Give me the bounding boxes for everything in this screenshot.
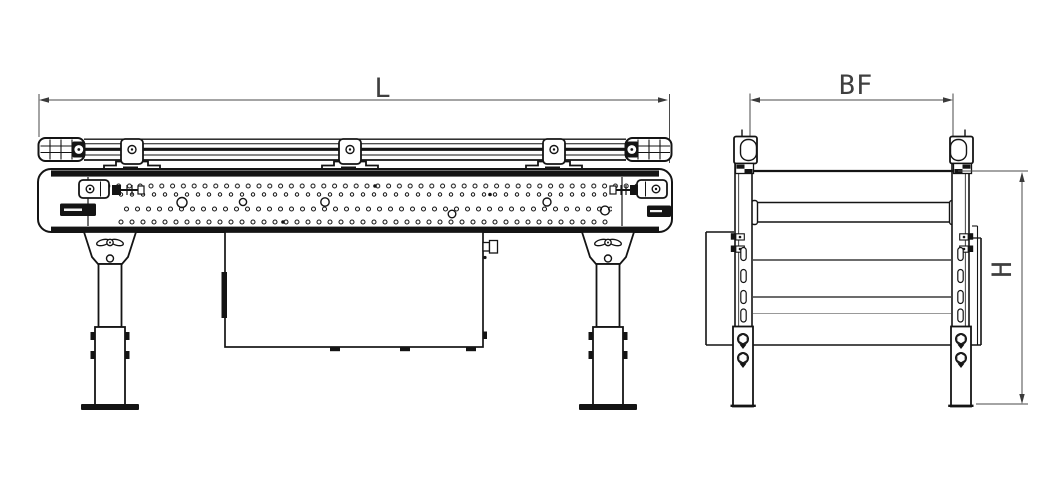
right-roller-clamp xyxy=(950,130,973,174)
belt-edge-perforation-row xyxy=(92,182,638,191)
return-roller xyxy=(752,201,956,225)
dimension-length-label: L xyxy=(374,73,391,104)
left-leg-channel xyxy=(731,161,756,407)
end-view: BF xyxy=(706,70,1028,407)
side-view: L xyxy=(38,73,672,410)
frame-cross-lines xyxy=(753,260,951,314)
dimension-height-label: H xyxy=(987,260,1018,277)
drive-box-hinge xyxy=(222,272,228,318)
drive-box-outline xyxy=(225,232,483,347)
right-leg-channel xyxy=(948,161,973,407)
dimension-belt-width-label: BF xyxy=(839,70,874,101)
perforated-side-panel xyxy=(118,190,612,227)
conveyor-body xyxy=(38,169,672,232)
arrowhead-left xyxy=(39,97,49,102)
left-support-leg xyxy=(81,232,139,410)
drive-box-foot xyxy=(400,347,410,351)
right-end-pulley xyxy=(626,138,672,161)
drive-box-foot xyxy=(330,347,340,351)
drive-box-foot xyxy=(466,347,476,351)
left-end-pulley xyxy=(39,138,86,161)
power-connector xyxy=(483,241,498,260)
arrowhead-right xyxy=(658,97,668,102)
dimension-belt-width: BF xyxy=(750,70,953,136)
belt-bottom-band xyxy=(51,227,659,232)
belt-top-band xyxy=(51,170,659,176)
right-support-leg xyxy=(579,232,637,410)
drive-unit-box xyxy=(222,232,498,351)
technical-drawing-conveyor: L xyxy=(0,0,1058,485)
left-roller-clamp xyxy=(734,130,757,174)
